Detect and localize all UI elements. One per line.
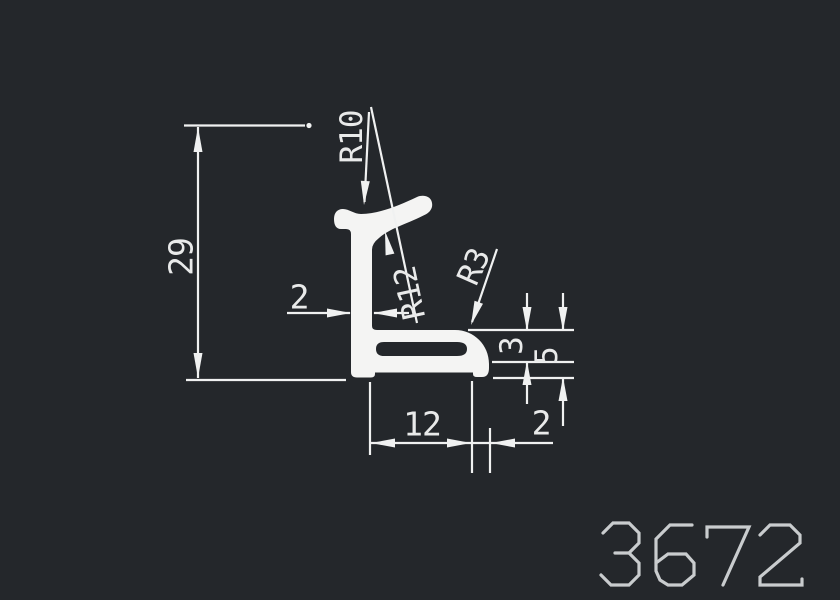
dim-r10: R10: [334, 111, 370, 206]
dim-stem-2-arrow-right: [373, 309, 397, 318]
dim-r3-arrow: [471, 301, 483, 325]
dim-29: 29: [162, 123, 347, 380]
dim-12-and-2: 12 2: [370, 381, 553, 473]
technical-drawing: 29 2 R10 R12 R3 3: [0, 0, 840, 600]
dim-2-arrow-right: [491, 439, 515, 448]
dim-29-arrow-down: [194, 353, 203, 378]
dim-stem-2-label: 2: [290, 278, 309, 317]
dim-29-ext-top-dot: [306, 123, 311, 128]
part-number-digit: [656, 525, 694, 585]
dim-12-arrow-right: [447, 439, 471, 448]
dim-r12-arrow: [385, 231, 394, 255]
part-number-digit: [603, 523, 639, 553]
dim-3-arrow-down: [523, 307, 532, 331]
dim-r3: R3: [450, 244, 497, 325]
dim-5-label: 5: [529, 347, 565, 365]
dim-3: 3: [494, 293, 532, 404]
part-number: [601, 523, 802, 585]
dim-29-label: 29: [162, 238, 201, 276]
dim-12-arrow-left: [371, 439, 395, 448]
dim-5-arrow-down: [559, 307, 568, 331]
part-number-digit: [707, 527, 749, 585]
cad-drawing-canvas: 29 2 R10 R12 R3 3: [0, 0, 840, 600]
dim-5-arrow-up: [559, 377, 568, 401]
part-number-digit: [601, 553, 639, 585]
dim-12-label: 12: [403, 405, 441, 444]
part-number-digit: [760, 525, 802, 585]
dim-r3-label: R3: [450, 244, 497, 291]
dim-r10-label: R10: [334, 111, 370, 164]
dim-3-label: 3: [494, 337, 530, 355]
dim-29-arrow-up: [194, 127, 203, 152]
dim-lip-2-label: 2: [532, 404, 551, 443]
dim-stem-2-arrow-left: [327, 309, 351, 318]
